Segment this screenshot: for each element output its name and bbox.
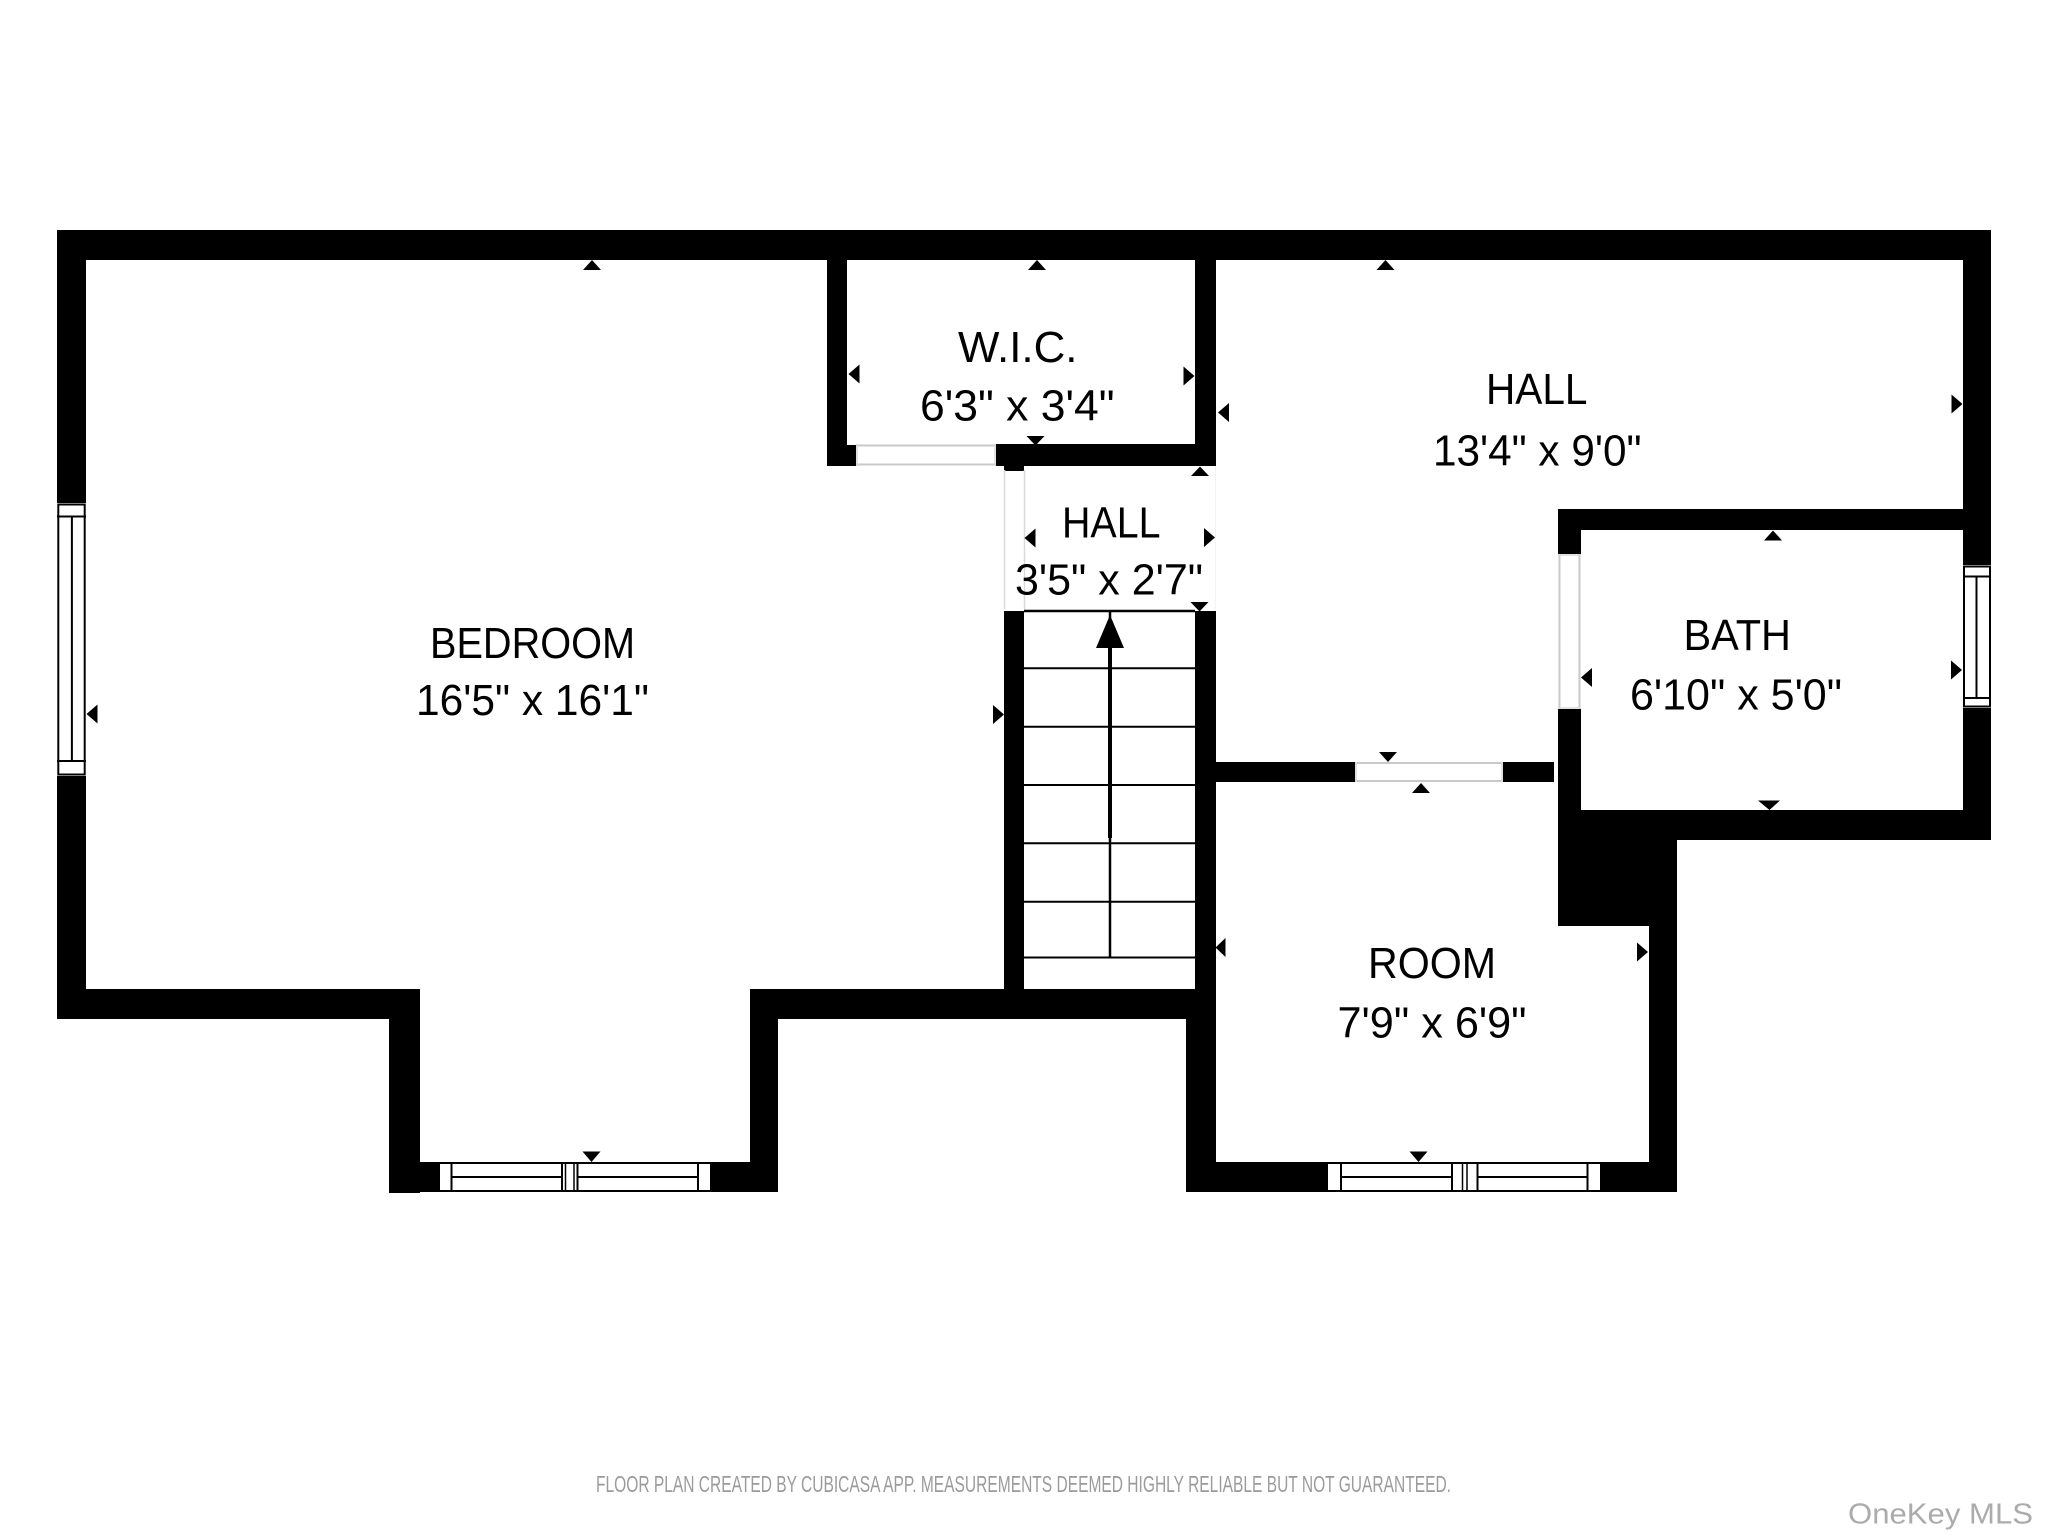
svg-text:ROOM: ROOM <box>1368 939 1496 988</box>
svg-text:HALL: HALL <box>1486 365 1588 414</box>
svg-text:6'10" x 5'0": 6'10" x 5'0" <box>1630 671 1842 720</box>
svg-text:BATH: BATH <box>1684 611 1792 660</box>
svg-text:13'4" x 9'0": 13'4" x 9'0" <box>1433 427 1642 476</box>
svg-text:7'9" x 6'9": 7'9" x 6'9" <box>1338 999 1527 1048</box>
svg-text:HALL: HALL <box>1062 499 1161 548</box>
svg-text:3'5" x 2'7": 3'5" x 2'7" <box>1015 556 1203 605</box>
svg-text:16'5" x 16'1": 16'5" x 16'1" <box>416 676 649 725</box>
svg-text:W.I.C.: W.I.C. <box>958 323 1078 372</box>
svg-text:BEDROOM: BEDROOM <box>430 619 635 668</box>
svg-text:6'3" x 3'4": 6'3" x 3'4" <box>920 382 1115 431</box>
svg-text:OneKey MLS: OneKey MLS <box>1848 1499 2033 1531</box>
svg-text:FLOOR PLAN CREATED BY CUBICASA: FLOOR PLAN CREATED BY CUBICASA APP. MEAS… <box>596 1471 1451 1497</box>
